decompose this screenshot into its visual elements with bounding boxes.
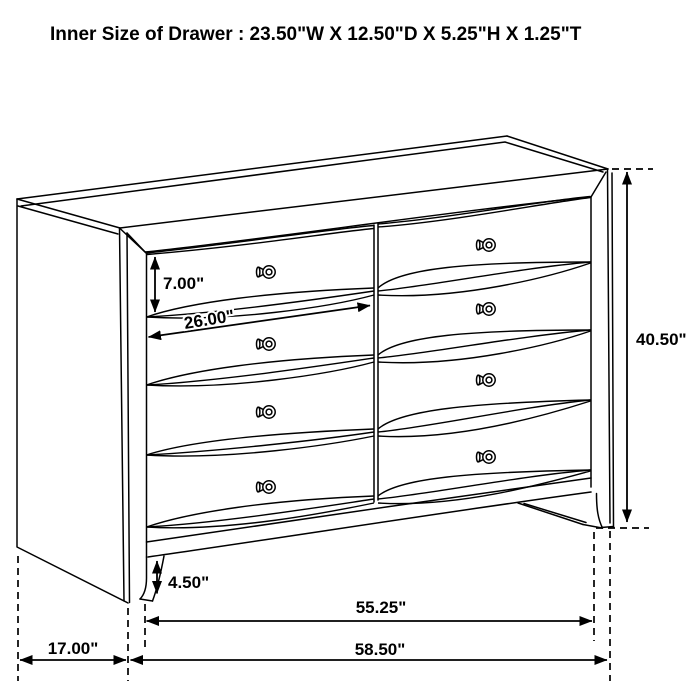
side-panel [17, 199, 128, 603]
left-foot [140, 557, 147, 599]
knob-icon [477, 374, 496, 386]
label-drawer-width: 26.00" [183, 306, 236, 333]
knob-icon [477, 451, 496, 463]
drawer-knobs [257, 239, 496, 493]
drawer-top-edges [145, 197, 591, 255]
label-overall-height: 40.50" [636, 330, 687, 349]
label-base-height: 4.50" [168, 573, 209, 592]
dresser-drawing [17, 136, 614, 603]
knob-icon [257, 338, 276, 350]
label-overall-width: 58.50" [355, 640, 406, 659]
knob-icon [257, 406, 276, 418]
page-title: Inner Size of Drawer : 23.50"W X 12.50"D… [50, 24, 582, 45]
knob-icon [477, 239, 496, 251]
knob-icon [257, 266, 276, 278]
label-drawer-opening-height: 7.00" [163, 274, 204, 293]
label-side-depth: 17.00" [48, 639, 99, 658]
right-foot [518, 503, 583, 525]
arrow-drawer-width [149, 306, 371, 338]
dimension-annotations: 7.00" 26.00" 40.50" 4.50" 55.25" 17.00" … [18, 169, 687, 681]
dresser-spec-diagram: Inner Size of Drawer : 23.50"W X 12.50"D… [0, 0, 700, 700]
knob-icon [477, 303, 496, 315]
label-front-width: 55.25" [356, 598, 407, 617]
diagram-canvas: Inner Size of Drawer : 23.50"W X 12.50"D… [0, 0, 700, 700]
knob-icon [257, 481, 276, 493]
extension-lines [18, 169, 653, 681]
